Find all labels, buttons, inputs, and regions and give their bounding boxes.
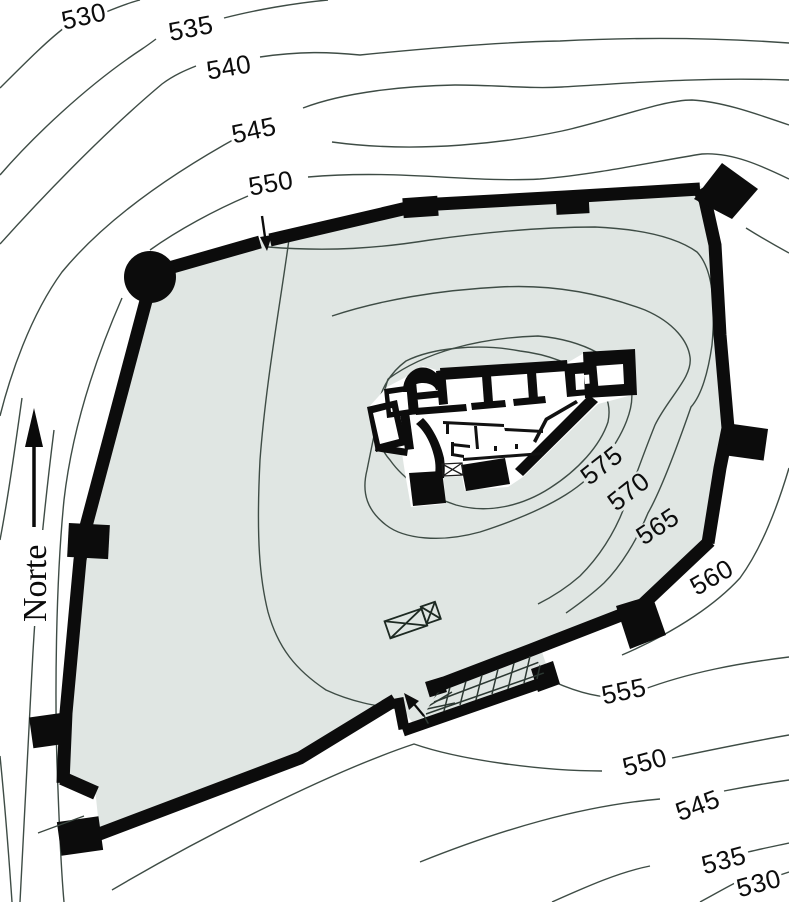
svg-text:Norte: Norte bbox=[17, 545, 54, 622]
